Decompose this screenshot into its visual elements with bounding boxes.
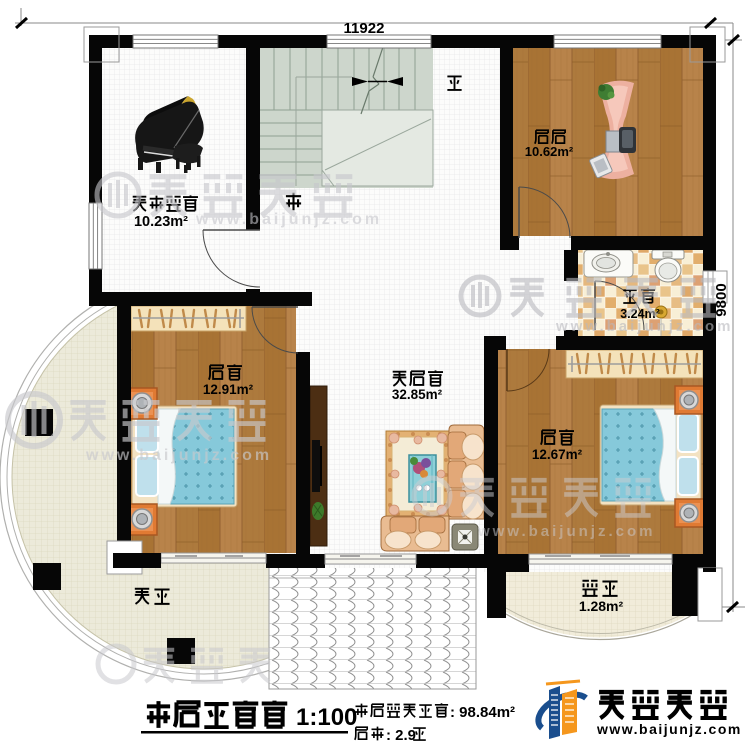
svg-text:10.62m²: 10.62m²	[525, 144, 574, 159]
svg-text:11922: 11922	[344, 20, 385, 37]
svg-text:1.28m²: 1.28m²	[579, 598, 624, 614]
svg-text:www.baijunjz.com: www.baijunjz.com	[195, 211, 382, 228]
svg-text:12.91m²: 12.91m²	[203, 382, 254, 397]
svg-text:www.baijunjz.com: www.baijunjz.com	[477, 523, 655, 540]
svg-text:12.67m²: 12.67m²	[532, 447, 583, 462]
svg-text:www.baijunjz.com: www.baijunjz.com	[596, 721, 742, 737]
svg-text:10.23m²: 10.23m²	[134, 214, 188, 230]
svg-text:32.85m²: 32.85m²	[392, 387, 443, 402]
svg-text:www.baijunjz.com: www.baijunjz.com	[555, 318, 733, 335]
svg-text:: 2.9: : 2.9	[386, 727, 416, 744]
svg-text:: 98.84m²: : 98.84m²	[450, 704, 515, 721]
svg-text:www.baijunjz.com: www.baijunjz.com	[85, 447, 272, 464]
svg-text:1:100: 1:100	[296, 704, 357, 731]
